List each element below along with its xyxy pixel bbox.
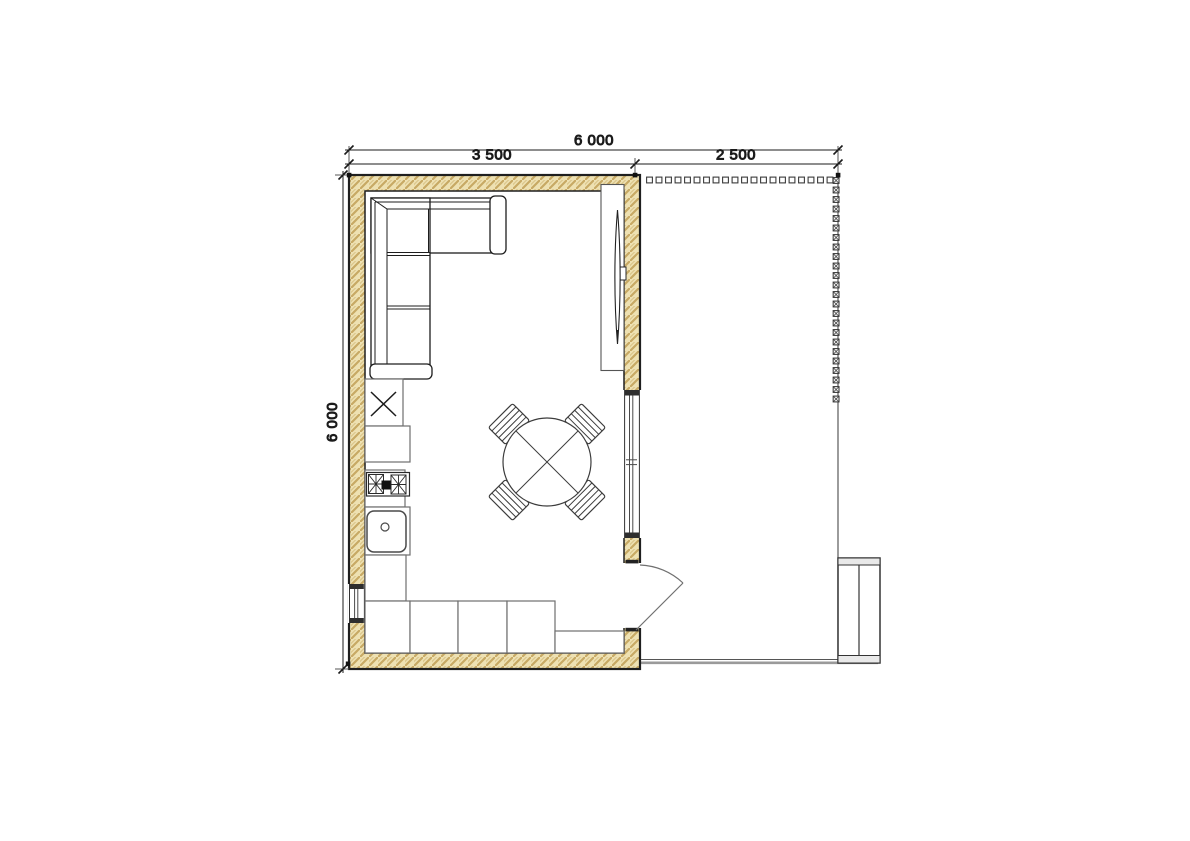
right-window [623, 390, 642, 538]
left-window [348, 584, 367, 623]
outdoor-cabinet [838, 558, 880, 663]
counter-cell [410, 601, 458, 653]
dining-set [488, 403, 605, 520]
sofa-armrest-right [490, 196, 506, 254]
dim-label-overall-depth: 6 000 [324, 402, 341, 442]
sofa-body-left [371, 198, 430, 366]
door-swing-arc [640, 565, 683, 583]
kitchen-sink [367, 511, 406, 552]
sink-drain [381, 523, 389, 531]
sofa-armrest-bottom [370, 364, 432, 379]
counter-shallow [555, 631, 624, 653]
dim-label-room-width: 3 500 [472, 147, 512, 164]
window-cap-bottom [350, 618, 364, 623]
window-cap-top [350, 584, 364, 589]
tv-screen [615, 210, 620, 344]
counter-cell [507, 601, 555, 653]
floor-plan-page: 6 000 3 500 2 500 6 000 [0, 0, 1190, 841]
terrace-posts-top-row [646, 177, 836, 184]
dim-overall-width: 6 000 [345, 132, 843, 155]
entry-door [623, 560, 683, 632]
cooktop-2-burner [367, 473, 410, 497]
window-cap-bottom [625, 533, 640, 539]
tv-unit [601, 185, 626, 371]
dim-overall-depth: 6 000 [324, 171, 348, 674]
floor-plan-drawing: 6 000 3 500 2 500 6 000 [0, 0, 1190, 841]
counter-cell [365, 555, 406, 601]
counter-corner-cell [365, 601, 410, 653]
counter-cell [365, 426, 410, 462]
cooktop-control [382, 481, 391, 490]
counter-cell [458, 601, 507, 653]
dim-label-terrace-width: 2 500 [716, 147, 756, 164]
door-jamb-top [626, 560, 639, 564]
dim-label-overall-width: 6 000 [574, 132, 614, 149]
door-leaf [636, 583, 683, 630]
window-cap-top [625, 390, 640, 396]
terrace-posts-right-column [833, 177, 840, 403]
